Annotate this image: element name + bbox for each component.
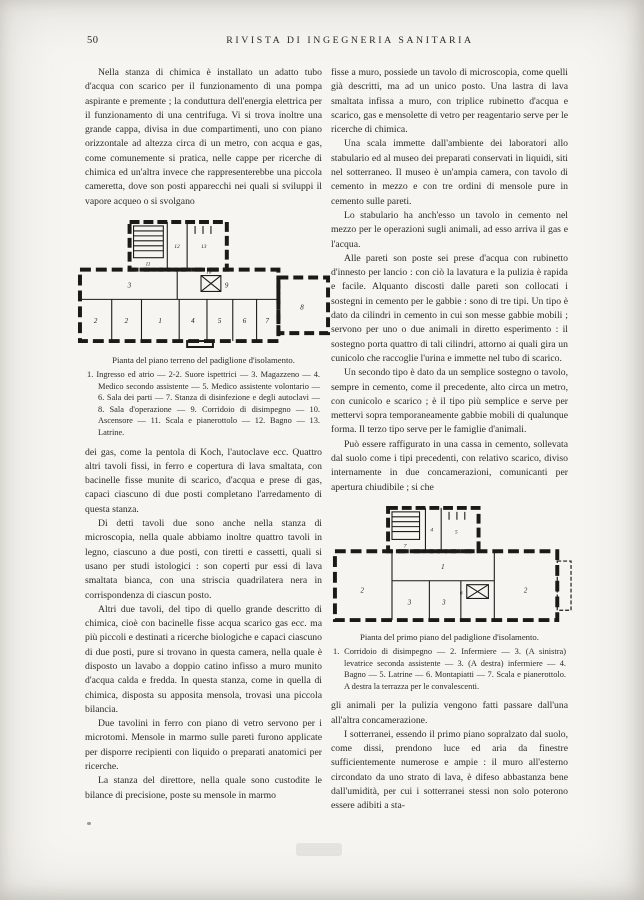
room-number-label: 12 bbox=[174, 244, 180, 250]
figure-caption-title: Pianta del piano terreno del padiglione … bbox=[85, 355, 322, 366]
body-paragraph: Altri due tavoli, del tipo di quello gra… bbox=[85, 603, 322, 717]
room-number-label: 4 bbox=[430, 526, 433, 533]
room-number-label: 8 bbox=[300, 303, 304, 311]
room-number-label: 10 bbox=[206, 270, 212, 276]
room-number-label: 2 bbox=[524, 587, 528, 594]
scan-artifact bbox=[296, 843, 342, 856]
body-paragraph: La stanza del direttore, nella quale son… bbox=[85, 774, 322, 803]
body-paragraph: dei gas, come la pentola di Koch, l'auto… bbox=[85, 446, 322, 517]
left-column: Nella stanza di chimica è installato un … bbox=[85, 66, 322, 803]
entrance-porch bbox=[187, 341, 213, 347]
body-paragraph: Lo stabulario ha anch'esso un tavolo in … bbox=[331, 209, 568, 252]
room-number-label: 6 bbox=[460, 590, 463, 596]
figure-legend: 1. Ingresso ed atrio — 2-2. Suore ispett… bbox=[87, 369, 320, 439]
dumbwaiter-x-icon bbox=[467, 585, 489, 599]
staircase-treads-icon bbox=[392, 512, 420, 540]
room-number-label: 5 bbox=[455, 529, 458, 535]
latrine-stalls-icon bbox=[195, 226, 211, 234]
room-number-label: 2 bbox=[361, 587, 365, 594]
first-floor-plan-figure: 2 1 3 3 2 7 4 5 6 Pianta del primo piano… bbox=[331, 504, 568, 692]
staircase-treads-icon bbox=[134, 226, 164, 258]
room-number-label: 4 bbox=[191, 317, 195, 325]
body-paragraph: I sotterranei, essendo il primo piano so… bbox=[331, 728, 568, 814]
room-number-label: 5 bbox=[218, 317, 222, 325]
body-paragraph: fisse a muro, possiede un tavolo di micr… bbox=[331, 66, 568, 137]
terrace-outline bbox=[557, 561, 571, 610]
figure-legend: 1. Corridoio di disimpegno — 2. Infermie… bbox=[333, 646, 566, 692]
body-paragraph: Può essere raffigurato in una cassa in c… bbox=[331, 438, 568, 495]
body-paragraph: Un secondo tipo è dato da un semplice so… bbox=[331, 366, 568, 437]
scanned-journal-page: 50 RIVISTA DI INGEGNERIA SANITARIA Nella… bbox=[0, 0, 644, 900]
room-number-label: 2 bbox=[125, 317, 129, 325]
room-number-label: 9 bbox=[225, 281, 229, 289]
room-number-label: 11 bbox=[145, 262, 150, 268]
room-number-label: 7 bbox=[404, 543, 407, 549]
ground-floor-plan-figure: 3 9 2 2 1 4 5 6 7 8 10 11 12 13 bbox=[85, 218, 322, 439]
room-number-label: 2 bbox=[94, 317, 98, 325]
body-paragraph: Di detti tavoli due sono anche nella sta… bbox=[85, 517, 322, 603]
room-number-label: 3 bbox=[407, 599, 412, 606]
body-paragraph: Nella stanza di chimica è installato un … bbox=[85, 66, 322, 209]
body-paragraph: Due tavolini in ferro con piano di vetro… bbox=[85, 717, 322, 774]
elevator-x-icon bbox=[201, 276, 221, 292]
room-number-label: 3 bbox=[441, 599, 446, 606]
ground-floor-plan-drawing: 3 9 2 2 1 4 5 6 7 8 10 11 12 13 bbox=[76, 218, 332, 349]
room-number-label: 13 bbox=[201, 244, 207, 250]
figure-caption-title: Pianta del primo piano del padiglione d'… bbox=[331, 632, 568, 643]
body-paragraph: Alle pareti son poste sei prese d'acqua … bbox=[331, 252, 568, 366]
journal-running-title: RIVISTA DI INGEGNERIA SANITARIA bbox=[110, 35, 590, 46]
room-number-label: 1 bbox=[441, 564, 444, 571]
scan-artifact bbox=[87, 822, 91, 825]
first-floor-plan-drawing: 2 1 3 3 2 7 4 5 6 bbox=[331, 504, 573, 626]
body-paragraph: Una scala immette dall'ambiente dei labo… bbox=[331, 137, 568, 208]
main-block-wall bbox=[335, 551, 557, 620]
right-column: fisse a muro, possiede un tavolo di micr… bbox=[331, 66, 568, 814]
room-number-label: 6 bbox=[243, 317, 247, 325]
body-paragraph: gli animali per la pulizia vengono fatti… bbox=[331, 699, 568, 728]
room-number-label: 7 bbox=[266, 317, 270, 325]
room-number-label: 3 bbox=[127, 281, 132, 289]
page-number: 50 bbox=[87, 35, 99, 46]
latrine-stalls-icon bbox=[449, 512, 465, 520]
room-number-label: 1 bbox=[158, 317, 161, 325]
